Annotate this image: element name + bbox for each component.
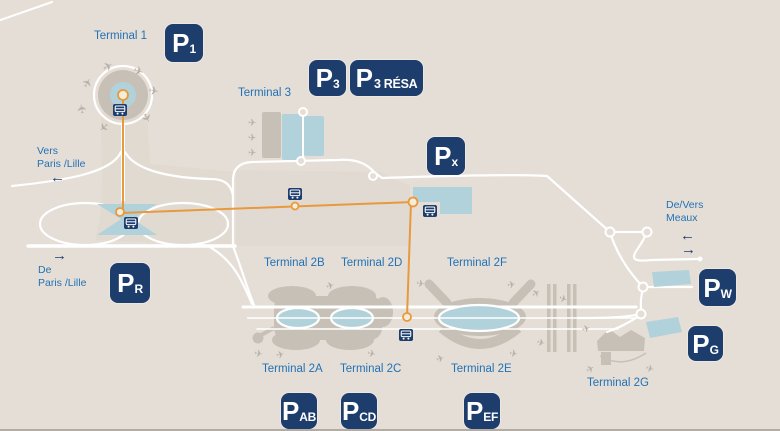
train-station-icon — [124, 217, 138, 229]
airplane-icon: ✈ — [248, 118, 256, 129]
parking-pg-badge: PG — [688, 326, 723, 361]
airplane-icon: ✈ — [557, 293, 569, 306]
terminal-2f-label: Terminal 2F — [447, 257, 507, 269]
arrow-right-icon: → — [681, 243, 696, 257]
airplane-icon: ✈ — [415, 278, 425, 290]
airplane-icon: ✈ — [275, 349, 285, 362]
parking-pr-badge: PR — [110, 263, 150, 303]
parking-sub-label: W — [721, 287, 732, 301]
terminal-3-building — [262, 112, 281, 158]
airplane-icon: ✈ — [508, 348, 518, 360]
parking-p-symbol: P — [282, 398, 299, 424]
parking-p-symbol: P — [692, 331, 709, 357]
parking-pcd-badge: PCD — [341, 393, 377, 429]
airplane-icon: ✈ — [74, 103, 90, 115]
parking-p3-badge: P3 — [309, 60, 346, 96]
direction-line: Paris /Lille — [38, 277, 86, 289]
airplane-icon: ✈ — [366, 348, 376, 361]
cdg-airport-map: ✈ ✈ ✈ ✈ ✈ ✈ ✈ ✈ ✈ ✈ ✈ ✈ ✈ ✈ ✈ ✈ ✈ ✈ ✈ ✈ … — [0, 0, 780, 431]
direction-line: Vers — [37, 145, 58, 157]
direction-line: Meaux — [666, 212, 698, 224]
direction-meaux: De/Vers Meaux — [666, 199, 703, 225]
parking-sub-label: 1 — [189, 42, 195, 56]
terminal-3-label: Terminal 3 — [238, 87, 291, 99]
arrow-left-icon: ← — [50, 171, 65, 185]
parking-sub-label: CD — [359, 410, 376, 424]
train-station-icon — [423, 205, 437, 217]
airplane-icon: ✈ — [325, 280, 336, 293]
train-station-icon — [113, 104, 127, 116]
parking-p-symbol: P — [172, 30, 189, 56]
parking-px-badge: Px — [427, 137, 465, 175]
parking-pef-badge: PEF — [464, 393, 500, 429]
parking-p-symbol: P — [316, 65, 333, 91]
airplane-icon: ✈ — [644, 363, 655, 376]
pw-parking-area — [652, 270, 691, 287]
train-station-icon — [288, 188, 302, 200]
parking-sub-label: x — [451, 155, 457, 169]
parking-p3-resa-badge: P3 RÉSA — [350, 60, 423, 96]
airplane-icon: ✈ — [148, 83, 160, 99]
parking-p-symbol: P — [117, 270, 134, 296]
airplane-icon: ✈ — [581, 323, 592, 336]
terminal-2g-building — [597, 329, 646, 365]
direction-line: De — [38, 264, 51, 276]
airplane-icon: ✈ — [248, 148, 256, 159]
terminal-2b-label: Terminal 2B — [264, 257, 325, 269]
terminal-2g-label: Terminal 2G — [587, 377, 649, 389]
parking-pab-badge: PAB — [281, 393, 317, 429]
airplane-icon: ✈ — [435, 353, 446, 366]
terminal-2e-label: Terminal 2E — [451, 363, 512, 375]
airplane-icon: ✈ — [79, 75, 96, 91]
direction-line: De/Vers — [666, 199, 703, 211]
parking-p-symbol: P — [342, 398, 359, 424]
airplane-icon: ✈ — [506, 279, 516, 291]
direction-de-paris-lille: De Paris /Lille — [38, 264, 86, 290]
arrow-right-icon: → — [52, 249, 67, 263]
parking-sub-label: EF — [483, 410, 498, 424]
airplane-icon: ✈ — [535, 337, 546, 350]
parking-pw-badge: PW — [699, 269, 736, 306]
direction-vers-paris-lille: Vers Paris /Lille — [37, 145, 85, 171]
parking-sub-label: R — [134, 282, 142, 296]
train-station-icon — [399, 329, 413, 341]
airplane-icon: ✈ — [584, 363, 597, 377]
parking-p-symbol: P — [703, 275, 720, 301]
terminal-2c-label: Terminal 2C — [340, 363, 401, 375]
pg-parking-area — [646, 317, 682, 338]
airplane-icon: ✈ — [253, 348, 263, 360]
parking-sub-label: G — [710, 343, 719, 357]
roads — [0, 2, 698, 332]
parking-p1-badge: P1 — [165, 24, 203, 62]
px-parking-area — [413, 187, 472, 214]
parking-p-symbol: P — [466, 398, 483, 424]
parking-sub-label: 3 — [333, 77, 339, 91]
airplane-icon: ✈ — [248, 133, 256, 144]
terminal-2a-label: Terminal 2A — [262, 363, 323, 375]
parking-p-symbol: P — [356, 65, 373, 91]
terminal-1-label: Terminal 1 — [94, 30, 147, 42]
parking-p-symbol: P — [434, 143, 451, 169]
terminal-2d-label: Terminal 2D — [341, 257, 402, 269]
parking-sub-label: AB — [299, 410, 316, 424]
parking-sub-label: 3 RÉSA — [374, 77, 417, 91]
